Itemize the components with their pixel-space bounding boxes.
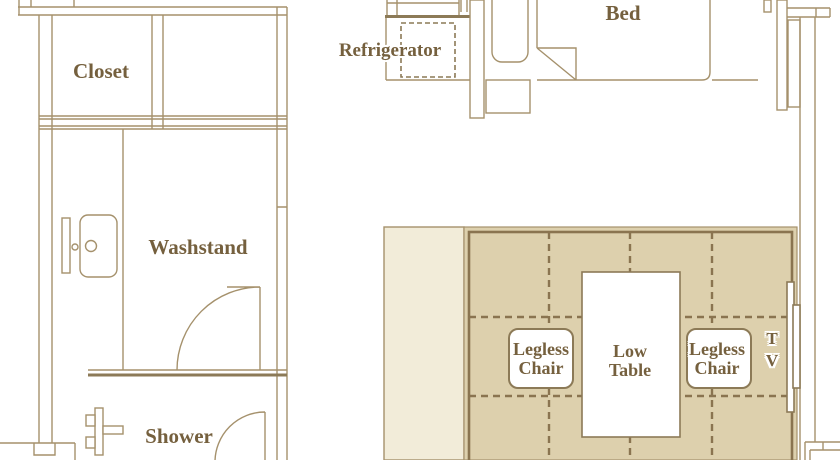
wall-bottom-left-corner: [0, 443, 75, 460]
flooring-strip: [384, 227, 464, 460]
shower-door-swing: [215, 412, 265, 460]
mirror-bar-shape: [62, 218, 70, 273]
walls-group: [0, 0, 287, 460]
low-table-label: Low Table: [609, 342, 651, 381]
legless-chair-left-label: Legless Chair: [513, 340, 569, 379]
pillow-shape: [492, 0, 528, 62]
washstand-label: Washstand: [148, 236, 247, 258]
legless-chair-right-label: Legless Chair: [689, 340, 745, 379]
shower-label: Shower: [145, 425, 213, 447]
bed-step-shape: [486, 80, 530, 113]
floor-plan: Closet Refrigerator Bed Washstand Shower…: [0, 0, 840, 460]
closet-divider-wall: [152, 15, 163, 129]
closet-label: Closet: [73, 60, 129, 82]
wall-right-thick: [777, 0, 787, 110]
shower-bar-shape: [95, 408, 103, 455]
bed-label: Bed: [605, 2, 640, 24]
wall-right-frame-lines: [787, 8, 830, 17]
shower-handle-shape: [103, 426, 123, 434]
wall-bottom-right-corner: [805, 442, 840, 460]
faucet-dot: [72, 244, 78, 250]
right-door-leaf: [788, 20, 800, 107]
wall-right-lines: [800, 17, 815, 460]
wall-right-cap: [764, 0, 771, 12]
shower-knob-bottom: [86, 437, 95, 448]
shower-knob-top: [86, 415, 95, 426]
refrigerator-label: Refrigerator: [339, 41, 441, 61]
bed-side-wall: [470, 0, 484, 118]
wall-left: [39, 15, 52, 443]
bed-fold-corner: [537, 48, 576, 80]
tv-label: T V: [766, 328, 778, 372]
bed-entry-lines: [461, 0, 467, 12]
wall-middle-vertical: [277, 7, 287, 460]
tv-screen-shape: [793, 305, 800, 388]
washstand-door-swing: [177, 287, 260, 370]
wall-top: [18, 7, 287, 15]
